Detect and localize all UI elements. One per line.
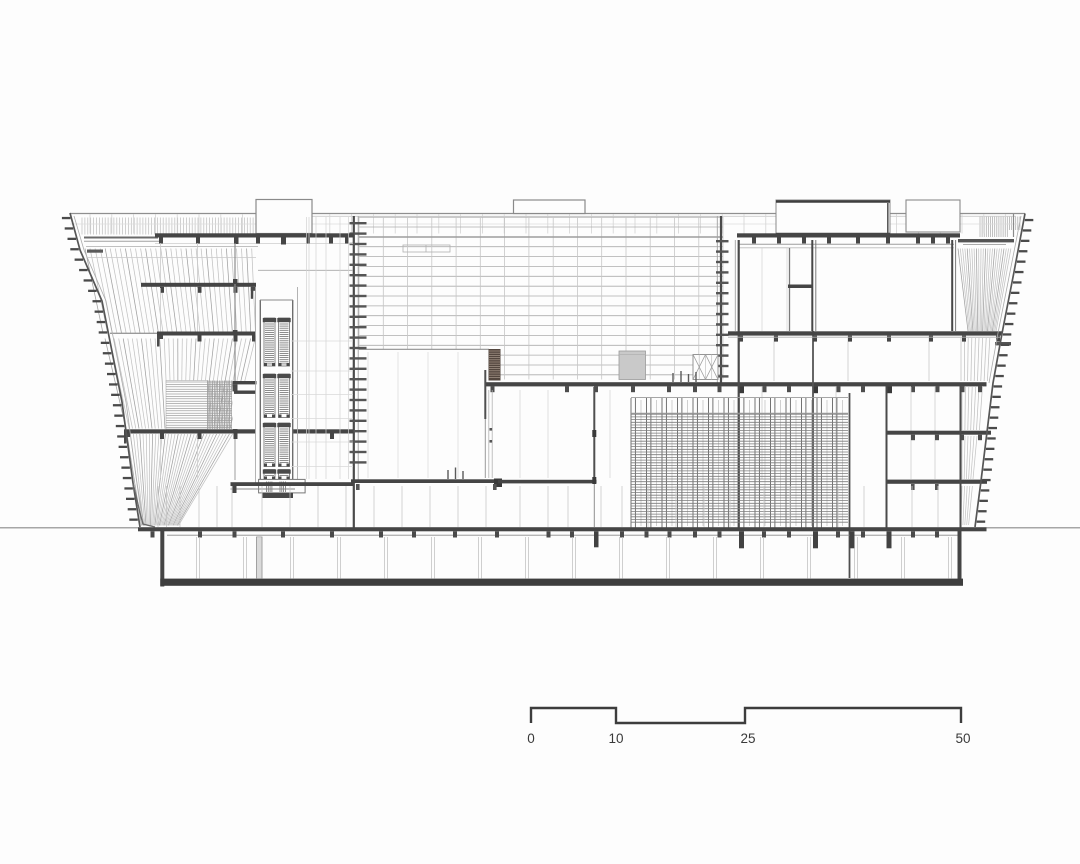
svg-text:50: 50 [955, 731, 970, 746]
svg-text:0: 0 [527, 731, 535, 746]
svg-text:10: 10 [608, 731, 623, 746]
svg-text:25: 25 [740, 731, 755, 746]
